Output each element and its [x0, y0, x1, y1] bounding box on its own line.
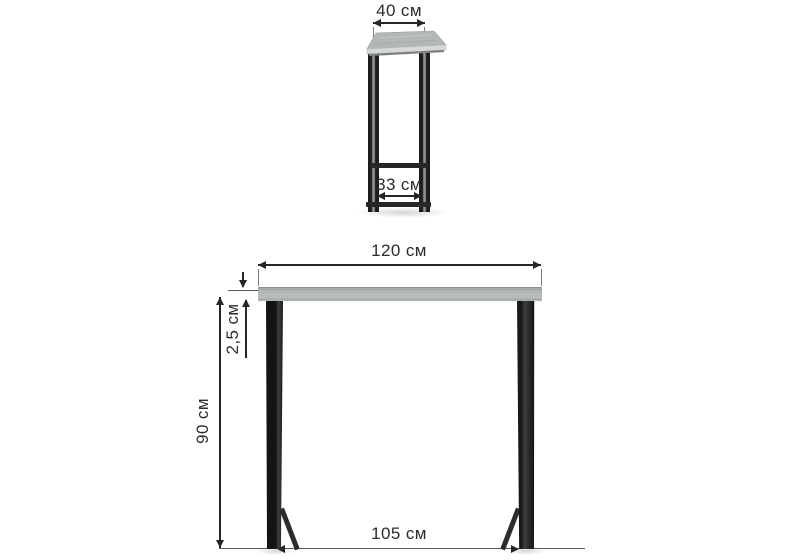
- front-leg-left: [266, 300, 283, 549]
- front-leg-right: [517, 300, 535, 549]
- thickness-arrow-top: [242, 272, 244, 287]
- thickness-arrow-bottom: [245, 300, 247, 358]
- front-tabletop: [258, 287, 542, 301]
- front-height-dimension-arrow: [219, 297, 221, 548]
- extension-line: [258, 269, 259, 286]
- extension-line: [541, 269, 542, 286]
- front-top-width-label: 120 см: [371, 241, 427, 261]
- front-top-width-dimension-arrow: [258, 264, 541, 266]
- side-top-depth-label: 40 см: [376, 1, 422, 21]
- side-inner-depth-dimension-arrow: [377, 195, 422, 197]
- front-height-label: 90 см: [193, 398, 213, 444]
- dimension-diagram: 40 см 33 см 120 см: [0, 0, 800, 560]
- side-view-floor-shadow: [356, 207, 450, 218]
- thickness-reference-tick: [228, 290, 259, 291]
- side-crossbar: [370, 163, 428, 168]
- front-top-thickness-label: 2,5 см: [223, 304, 243, 355]
- side-top-depth-dimension-arrow: [373, 22, 425, 24]
- front-base-width-label: 105 см: [371, 524, 427, 544]
- side-tabletop: [364, 30, 448, 56]
